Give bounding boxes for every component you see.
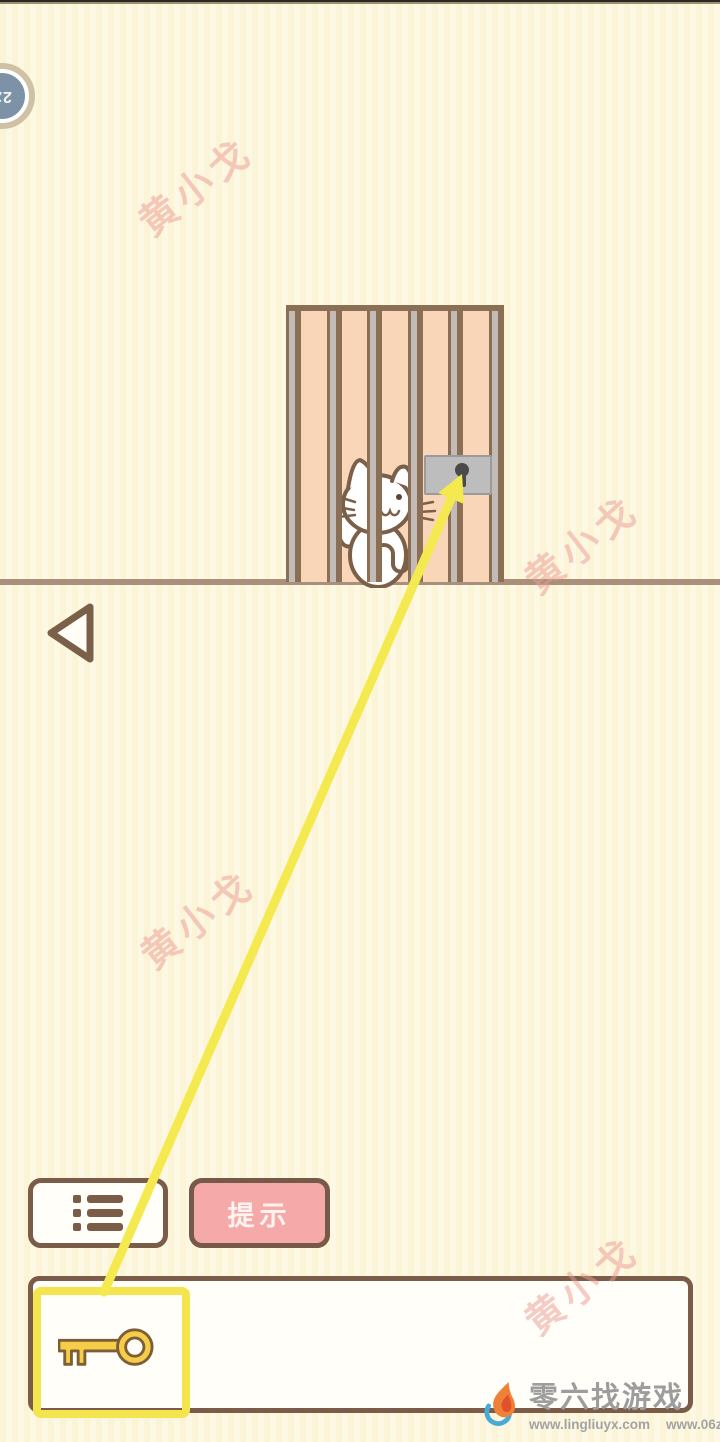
padlock[interactable] (424, 455, 492, 495)
cat-cage (286, 305, 504, 582)
inventory-slot-key-selected[interactable] (33, 1287, 190, 1418)
watermark-text: 黄小戈 (511, 480, 649, 605)
hint-button[interactable]: 提示 (189, 1178, 330, 1248)
cat-icon (286, 311, 504, 588)
cage-bar (408, 311, 423, 582)
keyhole-stem (459, 472, 466, 487)
site-url-right: www.06zyx.com (666, 1417, 720, 1432)
screen-top-edge-shadow (0, 2, 720, 4)
cage-bar (286, 311, 301, 582)
cat-eye (396, 494, 402, 500)
game-screen: { "window": { "width": 720, "height": 14… (0, 0, 720, 1442)
cage-bar (367, 311, 382, 582)
item-list-button[interactable] (28, 1178, 168, 1248)
hint-button-label: 提示 (228, 1194, 292, 1233)
cage-bar (489, 311, 504, 582)
back-button[interactable] (44, 600, 96, 666)
watermark-text: 黄小戈 (125, 122, 263, 247)
cage-bar (327, 311, 342, 582)
cage-bar (448, 311, 463, 582)
back-arrow-icon (44, 600, 96, 666)
level-badge: 22 (0, 63, 35, 129)
level-number: 22 (0, 73, 25, 119)
key-icon (58, 1324, 154, 1372)
site-url-left: www.lingliuyx.com (529, 1417, 650, 1432)
watermark-text: 黄小戈 (127, 855, 265, 980)
list-icon (73, 1195, 123, 1231)
